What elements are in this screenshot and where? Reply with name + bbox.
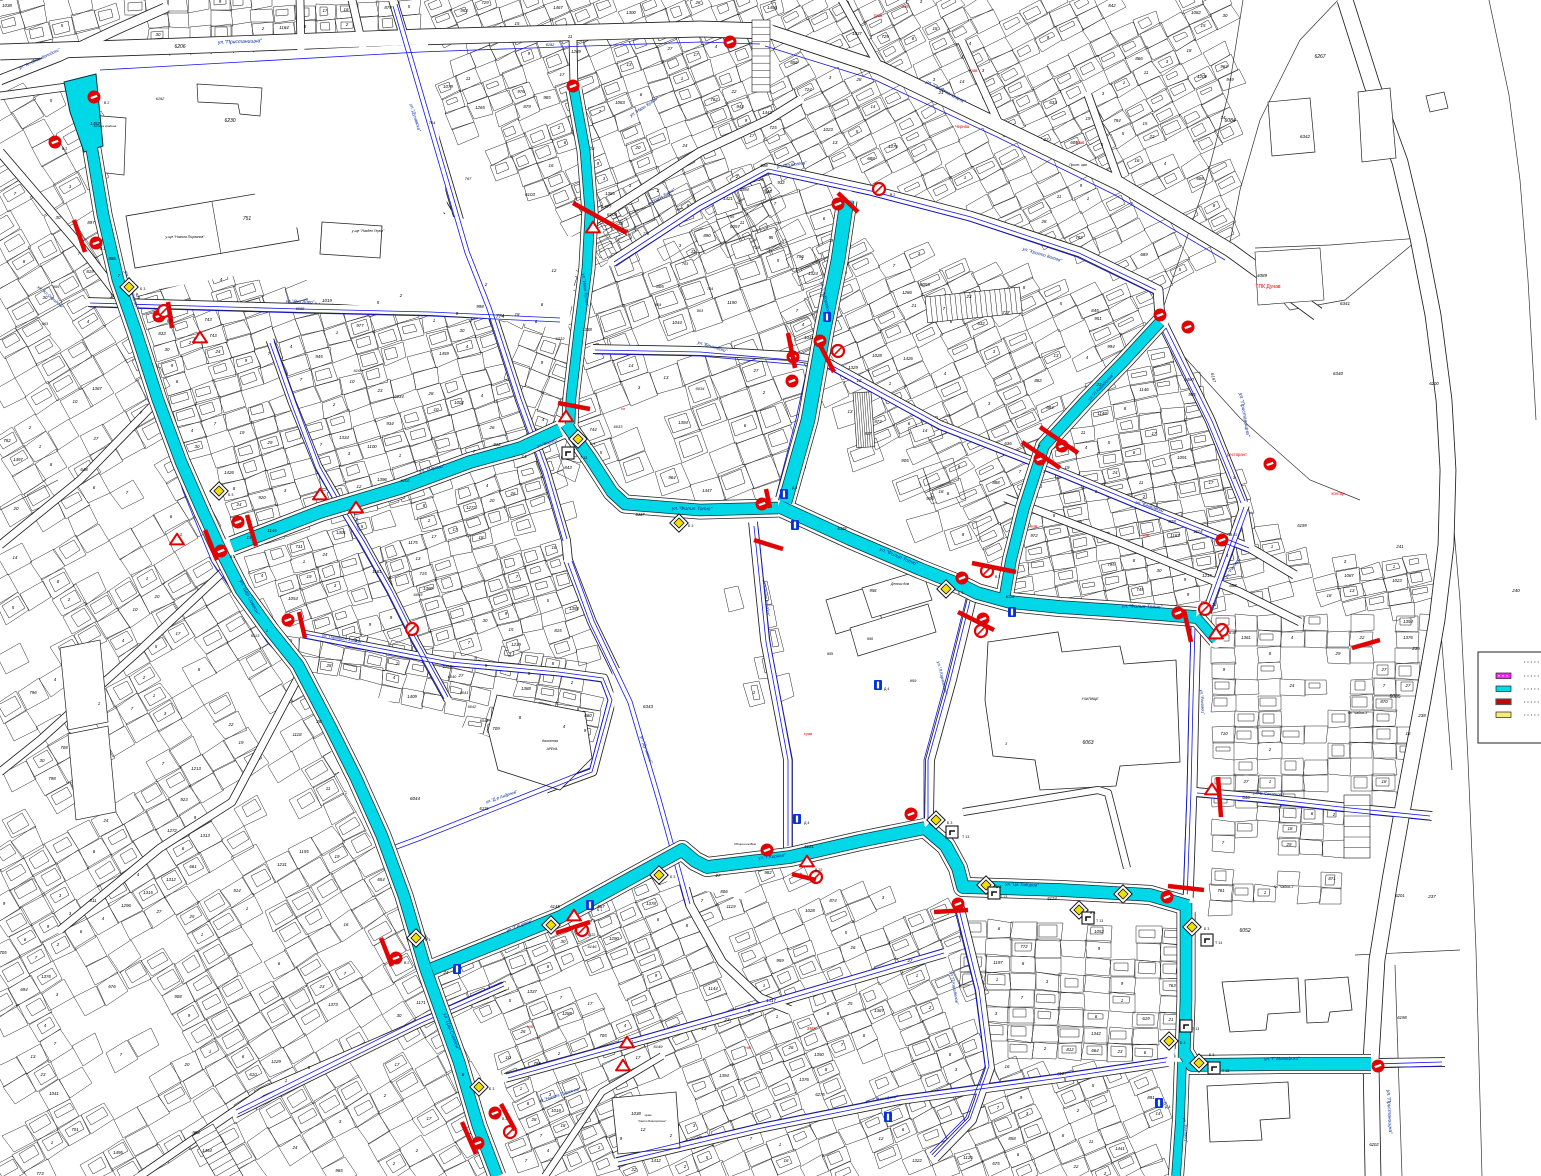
svg-text:6124: 6124	[1047, 896, 1057, 901]
svg-text:705: 705	[599, 1033, 607, 1038]
svg-text:858: 858	[1008, 1136, 1016, 1141]
svg-text:2: 2	[683, 1164, 687, 1169]
svg-text:1313: 1313	[200, 833, 210, 838]
svg-text:Т 13: Т 13	[962, 835, 969, 839]
svg-text:1023: 1023	[823, 127, 833, 132]
svg-text:6145: 6145	[550, 904, 560, 909]
svg-text:27: 27	[1381, 667, 1387, 672]
svg-text:В 2: В 2	[62, 147, 67, 151]
svg-text:15: 15	[509, 627, 514, 632]
svg-text:1197: 1197	[993, 960, 1003, 965]
svg-text:1229: 1229	[271, 1059, 281, 1064]
svg-text:646: 646	[1242, 795, 1250, 800]
svg-text:16: 16	[1005, 1064, 1010, 1069]
svg-text:959: 959	[776, 958, 784, 963]
svg-text:1209: 1209	[1197, 74, 1207, 79]
svg-text:14: 14	[576, 0, 581, 1]
svg-text:18: 18	[1327, 593, 1332, 598]
svg-text:Б 3: Б 3	[590, 442, 595, 446]
svg-text:17: 17	[1209, 480, 1214, 485]
svg-text:1125: 1125	[963, 1155, 973, 1160]
svg-text:трав: трав	[1076, 140, 1086, 145]
svg-text:715: 715	[419, 571, 427, 576]
svg-text:6198: 6198	[1397, 1015, 1407, 1020]
svg-text:1288: 1288	[562, 1011, 572, 1016]
svg-text:17: 17	[560, 72, 565, 77]
svg-text:26: 26	[788, 1045, 794, 1050]
svg-text:1342: 1342	[1091, 1031, 1101, 1036]
svg-text:725: 725	[769, 125, 777, 130]
svg-text:Б 3: Б 3	[958, 591, 963, 595]
svg-text:В 2: В 2	[995, 575, 1000, 579]
svg-text:14: 14	[13, 555, 18, 560]
svg-text:744: 744	[589, 427, 597, 432]
svg-text:1495: 1495	[113, 1150, 123, 1155]
svg-text:12: 12	[552, 268, 557, 273]
svg-text:17: 17	[432, 534, 437, 539]
svg-text:24: 24	[1289, 683, 1295, 688]
svg-text:15: 15	[515, 21, 520, 26]
svg-text:25: 25	[189, 914, 195, 919]
svg-text:1146: 1146	[1139, 387, 1149, 392]
svg-text:1447: 1447	[702, 488, 712, 493]
svg-text:6118: 6118	[1006, 594, 1015, 599]
svg-text:у-ще "Никола Първанов": у-ще "Никола Първанов"	[165, 235, 206, 239]
svg-text:2: 2	[332, 402, 336, 407]
svg-text:1490: 1490	[1184, 377, 1194, 382]
svg-text:934: 934	[386, 421, 394, 426]
svg-text:812: 812	[493, 442, 501, 447]
svg-text:19: 19	[240, 430, 245, 435]
svg-text:688: 688	[867, 156, 875, 161]
svg-text:784: 784	[707, 287, 713, 291]
svg-text:953: 953	[460, 8, 468, 13]
svg-text:18: 18	[933, 26, 938, 31]
svg-text:632: 632	[977, 321, 985, 326]
svg-text:30: 30	[195, 444, 200, 449]
svg-text:12: 12	[857, 378, 862, 383]
svg-text:16: 16	[552, 545, 557, 550]
svg-text:6040: 6040	[448, 675, 457, 679]
svg-text:6206: 6206	[174, 44, 185, 50]
svg-text:30: 30	[460, 328, 465, 333]
svg-text:28: 28	[428, 391, 434, 396]
svg-text:796: 796	[29, 690, 37, 695]
svg-text:21: 21	[1168, 1017, 1174, 1022]
svg-text:1394: 1394	[739, 187, 749, 192]
svg-text:6034: 6034	[394, 394, 404, 399]
svg-text:6342: 6342	[1300, 134, 1311, 139]
svg-text:882: 882	[1034, 378, 1042, 383]
svg-text:27: 27	[907, 958, 913, 963]
svg-text:6146: 6146	[588, 944, 598, 949]
svg-text:30: 30	[561, 939, 566, 944]
svg-text:1312: 1312	[166, 877, 176, 882]
svg-text:1118: 1118	[292, 732, 302, 737]
svg-text:1452: 1452	[90, 121, 100, 126]
svg-text:2: 2	[557, 125, 561, 130]
svg-text:2: 2	[928, 1005, 932, 1010]
svg-text:6201: 6201	[1395, 893, 1404, 898]
svg-text:1164: 1164	[279, 25, 289, 30]
svg-text:1459: 1459	[439, 351, 449, 356]
svg-text:НЖ: НЖ	[527, 1024, 534, 1029]
svg-text:В 22: В 22	[588, 933, 595, 937]
svg-text:620: 620	[889, 0, 897, 1]
svg-text:26: 26	[520, 1029, 526, 1034]
svg-text:30: 30	[483, 618, 488, 623]
svg-text:20: 20	[635, 145, 641, 150]
svg-text:694: 694	[20, 987, 28, 992]
svg-text:238: 238	[1417, 713, 1426, 718]
svg-text:6114: 6114	[442, 664, 452, 669]
svg-text:Б 3: Б 3	[688, 524, 693, 528]
svg-text:Прист. арм: Прист. арм	[1069, 163, 1087, 167]
svg-text:6199: 6199	[1297, 523, 1307, 528]
svg-text:23: 23	[319, 984, 325, 989]
svg-text:1385: 1385	[605, 191, 615, 196]
svg-text:2: 2	[142, 675, 146, 680]
svg-text:803: 803	[697, 309, 704, 313]
svg-text:1044: 1044	[672, 320, 682, 325]
svg-text:783: 783	[682, 262, 689, 266]
svg-text:24: 24	[443, 970, 449, 975]
svg-text:1052: 1052	[1094, 929, 1104, 934]
svg-text:656: 656	[790, 60, 798, 65]
svg-text:17: 17	[588, 1001, 593, 1006]
svg-text:633: 633	[1049, 100, 1057, 105]
svg-text:Б 3: Б 3	[670, 875, 675, 879]
svg-text:1354: 1354	[1403, 619, 1413, 624]
svg-text:В 22: В 22	[815, 868, 822, 872]
svg-text:805: 805	[656, 284, 664, 289]
svg-text:21: 21	[938, 90, 944, 95]
svg-text:нов: нов	[902, 4, 910, 9]
svg-text:14: 14	[871, 104, 876, 109]
svg-text:Б 3: Б 3	[1180, 1041, 1185, 1045]
svg-text:19: 19	[307, 574, 312, 579]
svg-text:985: 985	[543, 95, 551, 100]
svg-text:11: 11	[1081, 430, 1086, 435]
svg-text:6043: 6043	[480, 719, 489, 723]
svg-text:Б 3: Б 3	[947, 821, 952, 825]
svg-text:18: 18	[561, 1123, 566, 1128]
svg-text:13: 13	[31, 1054, 36, 1059]
svg-text:11: 11	[466, 76, 471, 81]
svg-text:764: 764	[429, 120, 436, 125]
svg-text:В 2: В 2	[104, 101, 109, 105]
svg-text:23: 23	[1117, 1049, 1123, 1054]
svg-text:В 22: В 22	[1230, 533, 1237, 537]
svg-text:24: 24	[292, 1145, 298, 1150]
svg-text:21: 21	[911, 303, 917, 308]
svg-text:804: 804	[655, 303, 661, 307]
svg-text:2: 2	[1268, 747, 1272, 752]
svg-text:17: 17	[453, 527, 458, 532]
svg-text:1367: 1367	[92, 386, 102, 391]
svg-text:трав: трав	[804, 731, 812, 736]
svg-text:610: 610	[249, 1072, 257, 1077]
svg-text:контар: контар	[1331, 491, 1345, 496]
svg-text:2: 2	[383, 1093, 387, 1098]
svg-text:1083: 1083	[615, 100, 625, 105]
svg-text:782: 782	[3, 438, 11, 443]
svg-text:В 2: В 2	[100, 247, 105, 251]
svg-text:Б 3: Б 3	[228, 493, 233, 497]
svg-text:18: 18	[1382, 779, 1387, 784]
svg-text:26: 26	[489, 425, 495, 430]
svg-text:6192: 6192	[546, 43, 555, 47]
svg-text:24: 24	[215, 349, 221, 354]
svg-text:1054: 1054	[288, 596, 298, 601]
svg-text:1394: 1394	[719, 1073, 729, 1078]
svg-text:6127: 6127	[1057, 1071, 1067, 1077]
svg-text:819: 819	[86, 269, 94, 274]
svg-text:14: 14	[522, 454, 527, 459]
svg-text:1265: 1265	[475, 105, 485, 110]
svg-text:27: 27	[93, 436, 99, 441]
svg-text:1441: 1441	[1115, 1146, 1125, 1151]
svg-text:965: 965	[335, 1168, 343, 1173]
svg-text:945: 945	[315, 354, 323, 359]
svg-text:17: 17	[694, 52, 699, 57]
svg-text:833: 833	[158, 331, 166, 336]
svg-text:1426: 1426	[224, 470, 234, 475]
svg-text:1289: 1289	[571, 49, 581, 54]
svg-text:27: 27	[1243, 779, 1249, 784]
svg-text:30: 30	[165, 347, 170, 352]
svg-text:16: 16	[344, 7, 349, 12]
svg-text:717: 717	[1002, 310, 1010, 315]
svg-text:1087: 1087	[1344, 573, 1354, 578]
svg-text:хл: хл	[621, 406, 626, 411]
svg-text:643: 643	[764, 189, 772, 194]
svg-text:660: 660	[584, 713, 592, 718]
svg-text:782: 782	[1075, 235, 1083, 240]
svg-text:1329: 1329	[848, 365, 858, 370]
svg-text:13: 13	[416, 556, 421, 561]
svg-text:Б 3: Б 3	[1204, 927, 1209, 931]
svg-text:1082: 1082	[1191, 10, 1201, 15]
svg-text:6115: 6115	[479, 806, 489, 811]
svg-text:22: 22	[1043, 137, 1049, 142]
svg-text:14: 14	[1156, 1111, 1161, 1116]
svg-text:30: 30	[397, 1013, 402, 1018]
svg-text:2: 2	[669, 1133, 673, 1138]
svg-text:906: 906	[926, 496, 934, 501]
svg-text:1497: 1497	[13, 457, 23, 462]
svg-text:30: 30	[40, 758, 45, 763]
svg-text:2: 2	[28, 425, 32, 430]
svg-text:16: 16	[1406, 731, 1411, 736]
svg-text:6192: 6192	[156, 97, 165, 101]
svg-text:10: 10	[73, 399, 78, 404]
svg-text:23: 23	[966, 294, 972, 299]
svg-text:837: 837	[865, 431, 873, 436]
svg-text:27: 27	[458, 673, 464, 678]
svg-text:19: 19	[239, 740, 244, 745]
svg-text:1028: 1028	[805, 908, 815, 913]
svg-text:1393: 1393	[569, 606, 579, 611]
svg-text:812: 812	[1066, 1047, 1074, 1052]
svg-text:6113: 6113	[251, 633, 260, 638]
svg-text:6104: 6104	[607, 212, 618, 217]
svg-text:6343: 6343	[643, 704, 654, 709]
svg-text:724: 724	[804, 87, 812, 92]
svg-text:1002: 1002	[454, 400, 464, 405]
svg-text:1023: 1023	[1392, 578, 1402, 583]
svg-text:908: 908	[174, 994, 182, 999]
svg-text:811: 811	[90, 898, 98, 903]
svg-text:1300: 1300	[626, 10, 636, 15]
svg-text:17: 17	[750, 133, 755, 138]
svg-text:1361: 1361	[1241, 635, 1251, 640]
svg-text:24: 24	[103, 818, 109, 823]
svg-text:Б 3: Б 3	[1209, 1053, 1214, 1057]
svg-text:6102: 6102	[401, 478, 411, 483]
svg-text:956: 956	[867, 637, 874, 641]
svg-text:1041: 1041	[804, 335, 814, 340]
svg-text:Чернва: Чернва	[955, 124, 970, 129]
svg-text:958: 958	[870, 588, 878, 593]
svg-text:675: 675	[992, 1161, 1000, 1166]
svg-text:1360: 1360	[423, 586, 433, 591]
svg-text:Б 3: Б 3	[996, 885, 1001, 889]
svg-text:1187: 1187	[1170, 533, 1180, 538]
svg-text:1322: 1322	[912, 1158, 922, 1163]
svg-text:6042: 6042	[468, 705, 477, 709]
svg-text:1296: 1296	[121, 903, 131, 908]
svg-text:22: 22	[228, 722, 234, 727]
svg-text:762: 762	[710, 97, 718, 102]
svg-text:1091: 1091	[1177, 455, 1187, 460]
svg-text:29: 29	[1335, 651, 1341, 656]
svg-text:28: 28	[695, 0, 701, 5]
svg-text:815: 815	[554, 628, 562, 633]
svg-text:1376: 1376	[799, 1077, 809, 1082]
svg-text:1041: 1041	[49, 1091, 59, 1096]
svg-text:1019: 1019	[322, 298, 332, 303]
svg-text:1155: 1155	[299, 849, 309, 854]
svg-text:798: 798	[48, 776, 56, 781]
svg-text:Д 4: Д 4	[804, 821, 809, 825]
svg-text:Д 4: Д 4	[884, 687, 889, 691]
svg-text:Т 13: Т 13	[580, 456, 587, 460]
svg-text:1373: 1373	[328, 1002, 338, 1007]
svg-text:28: 28	[758, 177, 764, 182]
svg-text:1079: 1079	[443, 84, 453, 89]
svg-text:30: 30	[56, 215, 61, 220]
svg-text:2: 2	[261, 26, 265, 31]
svg-text:19: 19	[1086, 116, 1091, 121]
svg-text:994: 994	[1107, 344, 1115, 349]
svg-text:781: 781	[1217, 888, 1225, 893]
svg-text:1350: 1350	[814, 1052, 824, 1057]
svg-text:2: 2	[735, 174, 739, 179]
svg-text:18: 18	[515, 312, 520, 317]
svg-text:Т 13: Т 13	[1215, 941, 1222, 945]
svg-text:932: 932	[777, 180, 785, 185]
svg-text:6058: 6058	[920, 282, 931, 287]
svg-text:795: 795	[728, 214, 735, 219]
svg-text:27: 27	[667, 46, 673, 51]
svg-text:НЖ: НЖ	[1143, 533, 1150, 538]
svg-text:778: 778	[643, 232, 650, 236]
svg-text:6034: 6034	[696, 386, 706, 391]
svg-text:1388: 1388	[521, 686, 531, 691]
svg-text:763: 763	[1168, 983, 1176, 988]
svg-text:772: 772	[1020, 944, 1028, 949]
svg-text:27: 27	[156, 909, 162, 914]
svg-text:1175: 1175	[408, 540, 418, 545]
svg-text:1119: 1119	[726, 904, 736, 909]
svg-text:22: 22	[731, 89, 737, 94]
svg-text:920: 920	[258, 495, 266, 500]
svg-text:879: 879	[384, 5, 392, 10]
svg-text:20: 20	[13, 506, 19, 511]
svg-text:11: 11	[1057, 194, 1062, 199]
svg-text:храм: храм	[644, 1113, 652, 1117]
svg-text:В 2: В 2	[502, 1117, 507, 1121]
svg-text:751: 751	[243, 216, 252, 222]
svg-text:17: 17	[1152, 431, 1157, 436]
svg-text:22: 22	[1096, 382, 1102, 387]
svg-text:1417: 1417	[766, 998, 776, 1003]
svg-text:985: 985	[1188, 392, 1196, 397]
svg-text:27: 27	[753, 368, 759, 373]
svg-text:24: 24	[236, 502, 242, 507]
svg-text:10: 10	[133, 607, 138, 612]
svg-text:1337: 1337	[527, 989, 537, 994]
svg-text:24: 24	[1112, 470, 1118, 475]
svg-text:10: 10	[506, 1055, 511, 1060]
svg-text:ул."Филип Тотю": ул."Филип Тотю"	[671, 506, 713, 513]
svg-text:6041: 6041	[460, 691, 468, 695]
svg-text:19: 19	[1065, 465, 1070, 470]
svg-text:ТПК Дунав: ТПК Дунав	[1255, 284, 1280, 290]
svg-text:2: 2	[399, 293, 403, 298]
svg-text:29: 29	[267, 440, 273, 445]
svg-text:1114: 1114	[1193, 529, 1203, 534]
svg-text:1396: 1396	[377, 477, 387, 482]
svg-text:663: 663	[42, 322, 49, 326]
svg-text:трав: трав	[969, 68, 979, 73]
svg-text:914: 914	[233, 888, 241, 893]
svg-text:1276: 1276	[888, 144, 898, 149]
svg-text:963: 963	[1220, 64, 1228, 69]
svg-text:дискотека: дискотека	[542, 739, 558, 743]
svg-text:Д 4: Д 4	[1165, 1105, 1170, 1109]
svg-text:1456: 1456	[767, 5, 777, 10]
svg-text:30: 30	[43, 295, 48, 300]
svg-text:13: 13	[702, 1026, 707, 1031]
svg-text:бл."Чайка-1": бл."Чайка-1"	[1274, 885, 1296, 889]
svg-text:1286: 1286	[902, 290, 912, 295]
svg-text:Б 3: Б 3	[140, 287, 145, 291]
svg-text:20: 20	[184, 1062, 190, 1067]
svg-text:1219: 1219	[511, 642, 521, 647]
svg-text:10: 10	[434, 407, 439, 412]
svg-text:23: 23	[377, 388, 383, 393]
svg-text:1378: 1378	[646, 901, 656, 906]
svg-text:22: 22	[1149, 134, 1155, 139]
svg-text:27: 27	[715, 873, 721, 878]
svg-text:795: 795	[1107, 562, 1115, 567]
svg-text:Д 4: Д 4	[792, 486, 797, 490]
svg-text:1376: 1376	[41, 974, 51, 979]
svg-text:15: 15	[1143, 121, 1148, 126]
svg-text:2: 2	[484, 282, 488, 287]
